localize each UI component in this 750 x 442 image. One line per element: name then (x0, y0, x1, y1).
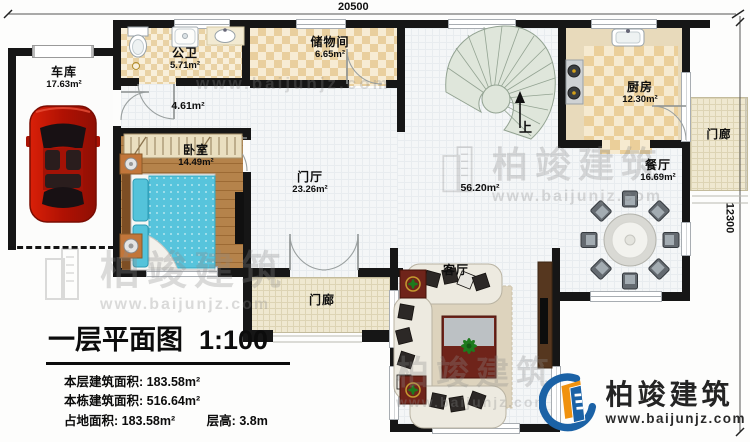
wall (243, 128, 251, 140)
wall (243, 172, 251, 277)
floor-stair-area (397, 28, 558, 268)
window (448, 19, 516, 29)
room-label-dining: 餐厅16.69m² (618, 159, 698, 184)
wall (113, 128, 250, 136)
wall (8, 48, 16, 250)
room-label-corridor-area: 4.61m² (150, 100, 226, 112)
plan-scale: 1:100 (199, 325, 268, 356)
porch-right (690, 97, 748, 191)
window (389, 366, 399, 420)
room-label-bedroom: 卧室14.49m² (156, 144, 236, 169)
room-label-storage: 储物间6.65m² (290, 36, 370, 61)
window (681, 222, 691, 256)
window (389, 290, 399, 348)
stat-floor-area: 本层建筑面积: 183.58m² (64, 373, 290, 392)
room-label-open-area: 56.20m² (440, 182, 520, 194)
room-label-bath: 公卫5.71m² (150, 47, 220, 72)
room-label-living: 客厅 (416, 264, 496, 278)
window (590, 291, 662, 302)
window (591, 19, 657, 29)
window (146, 266, 218, 277)
floor-plan: www.baijunjz.com 柏竣建筑 www.baijunjz.com 柏… (0, 0, 750, 442)
company-logo-icon (539, 372, 597, 434)
garage-door (32, 45, 94, 58)
wall (243, 268, 290, 277)
company-website: www.baijunjz.com (605, 411, 746, 426)
floor-kitchen-doorway (600, 140, 652, 154)
watermark-logo-icon (40, 245, 92, 307)
wall (682, 20, 690, 72)
wall (113, 78, 139, 86)
company-brand: 柏竣建筑 www.baijunjz.com (539, 372, 746, 434)
wall (558, 20, 566, 148)
stat-building-area: 本栋建筑面积: 516.64m² (64, 392, 290, 411)
stat-footprint-and-height: 占地面积: 183.58m² 层高: 3.8m (64, 412, 290, 431)
window (681, 72, 691, 142)
title-block: 一层平面图 1:100 本层建筑面积: 183.58m² 本栋建筑面积: 516… (46, 318, 290, 431)
room-label-garage: 车库17.63m² (24, 66, 104, 91)
plan-title-text: 一层平面图 (48, 318, 183, 357)
dimension-top: 20500 (338, 1, 369, 13)
room-label-porch-bottom: 门廊 (282, 294, 362, 308)
window (296, 19, 346, 29)
plan-title: 一层平面图 1:100 (46, 318, 290, 365)
wall (390, 420, 398, 432)
wall (397, 20, 405, 132)
stair-up-label: 上 (519, 117, 532, 136)
wall (113, 126, 121, 277)
window (174, 19, 230, 29)
wall (566, 140, 602, 148)
window (432, 423, 520, 434)
dimension-right: 12300 (723, 203, 735, 234)
wall (390, 348, 398, 366)
room-label-kitchen: 厨房12.30m² (600, 81, 680, 106)
room-label-foyer: 门厅23.26m² (270, 171, 350, 196)
garage-open-side (8, 246, 114, 249)
watermark-url: www.baijunjz.com (196, 74, 391, 94)
wall (552, 248, 560, 366)
plan-stats: 本层建筑面积: 183.58m² 本栋建筑面积: 516.64m² 占地面积: … (64, 373, 290, 431)
room-label-porch-right: 门廊 (691, 129, 747, 142)
wall (94, 48, 113, 56)
company-name: 柏竣建筑 (605, 380, 746, 409)
wall (358, 268, 403, 277)
